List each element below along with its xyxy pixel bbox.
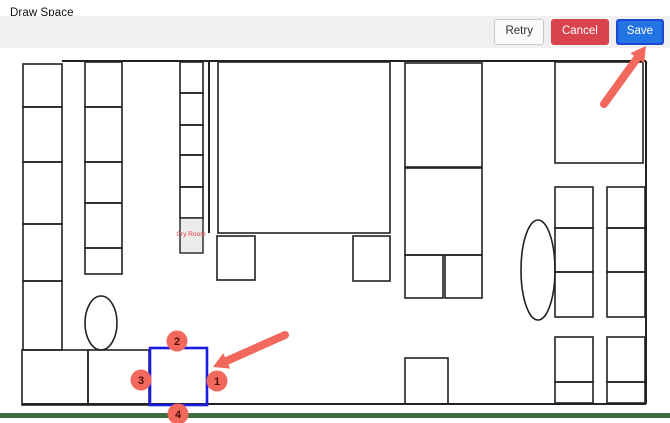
- retry-button[interactable]: Retry: [494, 19, 543, 45]
- floorplan-room: [23, 64, 62, 107]
- floorplan-room: [555, 228, 593, 272]
- floorplan-room: [405, 63, 482, 167]
- vertex-marker-number: 2: [174, 336, 180, 348]
- annotation-arrow-head: [630, 46, 646, 63]
- drawn-space-highlight[interactable]: [150, 348, 207, 405]
- cancel-button[interactable]: Cancel: [551, 19, 609, 45]
- floorplan-room: [180, 93, 203, 125]
- floorplan-room: [607, 228, 645, 272]
- vertex-marker-circle[interactable]: [207, 371, 228, 392]
- floorplan-room: [607, 382, 645, 403]
- floorplan-room: [85, 203, 122, 248]
- floorplan-room: [555, 382, 593, 403]
- floorplan-room: [445, 255, 482, 298]
- cry-room-rect: [180, 218, 203, 253]
- floorplan-room: [353, 236, 390, 281]
- floorplan-room: [555, 337, 593, 382]
- floorplan-room: [22, 350, 88, 405]
- floorplan-room: [180, 187, 203, 218]
- floorplan-room: [88, 350, 149, 405]
- vertex-marker-number: 1: [214, 376, 220, 388]
- floorplan-room: [607, 272, 645, 317]
- floorplan-room: [555, 187, 593, 228]
- toolbar: Retry Cancel Save: [0, 16, 670, 48]
- floorplan-room: [85, 107, 122, 162]
- vertex-marker-number: 4: [175, 409, 182, 421]
- annotation-arrow-shaft: [227, 335, 285, 361]
- vertex-marker-circle[interactable]: [131, 370, 152, 391]
- vertex-marker-circle[interactable]: [167, 331, 188, 352]
- floorplan-room: [607, 337, 645, 382]
- floorplan-room: [23, 162, 62, 224]
- floorplan-room: [85, 162, 122, 203]
- floorplan-room: [218, 62, 390, 233]
- floorplan-room: [180, 125, 203, 155]
- floorplan-room: [85, 248, 122, 274]
- floorplan-room: [23, 224, 62, 281]
- floorplan-room: [180, 155, 203, 187]
- floorplan-room: [607, 187, 645, 228]
- annotation-arrow-shaft: [604, 58, 637, 104]
- floorplan-room: [23, 107, 62, 162]
- annotation-arrow-head: [213, 353, 230, 369]
- floorplan-room: [23, 281, 62, 350]
- save-button[interactable]: Save: [616, 19, 664, 45]
- vertex-marker-number: 3: [138, 375, 144, 387]
- floorplan-room: [555, 272, 593, 317]
- floorplan-room: [180, 62, 203, 93]
- floorplan-ellipse: [85, 296, 117, 350]
- floorplan-room: [555, 62, 643, 163]
- floorplan-room: [217, 236, 255, 280]
- floorplan-canvas[interactable]: Cry Room1234: [0, 0, 670, 423]
- floorplan-room: [405, 255, 443, 298]
- floorplan-room: [85, 62, 122, 107]
- cry-room-label: Cry Room: [176, 231, 205, 238]
- bottom-green-bar: [0, 413, 670, 418]
- floorplan-ellipse: [521, 220, 555, 320]
- floorplan-room: [405, 358, 448, 404]
- floorplan-room: [405, 168, 482, 255]
- vertex-marker-circle[interactable]: [168, 404, 189, 423]
